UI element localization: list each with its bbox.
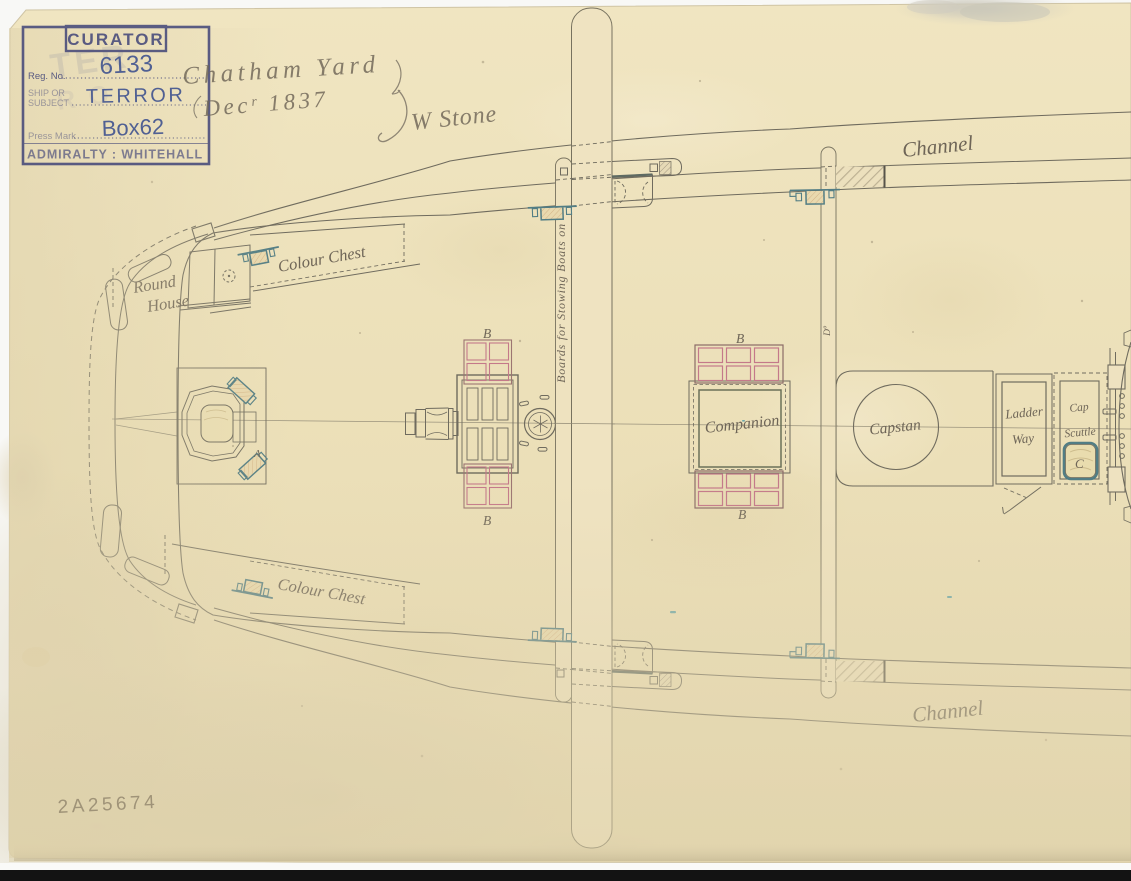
svg-text:ADMIRALTY : WHITEHALL: ADMIRALTY : WHITEHALL — [27, 148, 203, 162]
svg-text:Cap: Cap — [1069, 401, 1089, 415]
svg-text:Box62: Box62 — [101, 114, 164, 141]
svg-text:Press Mark: Press Mark — [28, 131, 76, 142]
svg-text:TERROR: TERROR — [86, 84, 186, 108]
svg-text:SUBJECT: SUBJECT — [28, 98, 70, 108]
svg-text:B: B — [483, 326, 491, 341]
svg-text:B: B — [736, 331, 744, 346]
svg-text:Way: Way — [1011, 430, 1034, 447]
svg-text:Reg. No.: Reg. No. — [28, 71, 66, 82]
svg-text:SHIP OR: SHIP OR — [28, 88, 65, 98]
svg-text:C: C — [1075, 456, 1084, 471]
svg-text:6133: 6133 — [99, 50, 154, 80]
svg-text:CURATOR: CURATOR — [67, 30, 164, 49]
svg-text:Boards for Stowing Boats on: Boards for Stowing Boats on — [554, 223, 568, 383]
svg-text:Dº: Dº — [823, 325, 833, 337]
